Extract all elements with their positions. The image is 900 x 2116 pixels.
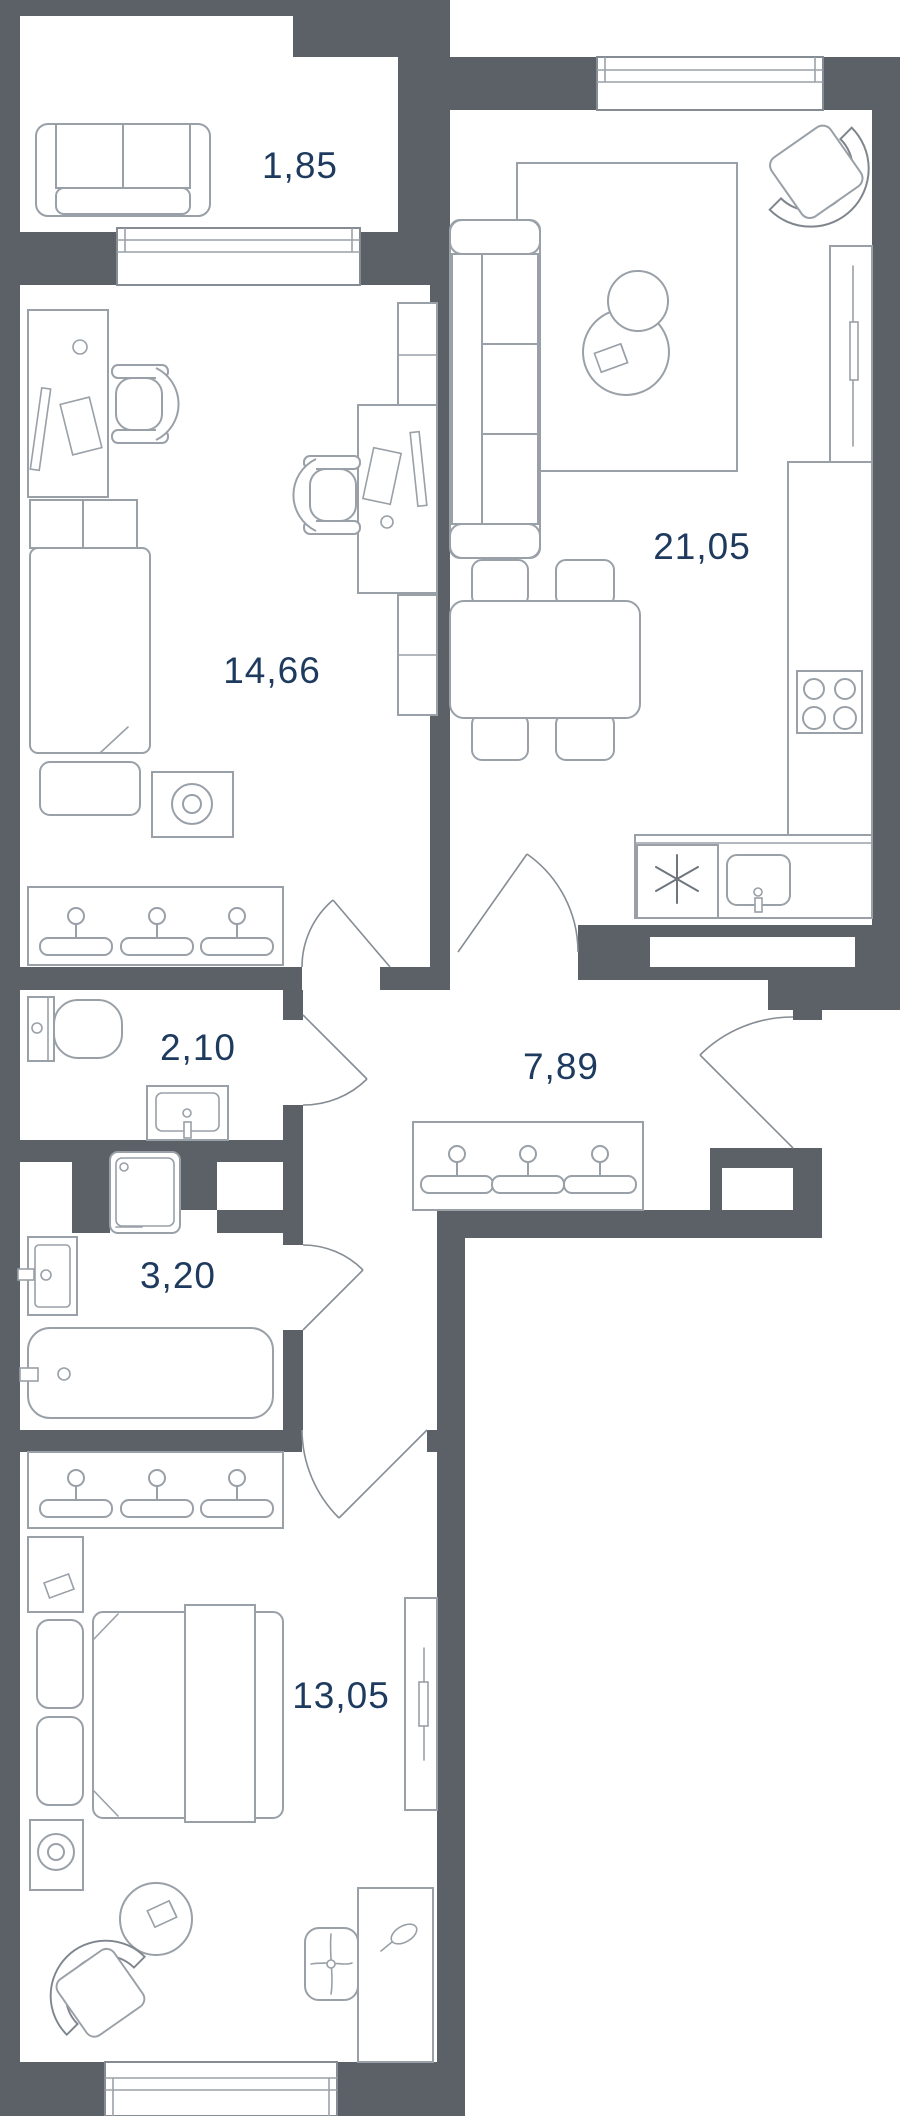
door-living	[458, 854, 578, 952]
wall-bedroom2-right	[437, 1210, 465, 2096]
coffee-tables-icon	[583, 271, 669, 395]
pouf-icon	[305, 1928, 358, 2000]
room-bedroom	[28, 1452, 437, 2062]
wall-washer-block-right	[180, 1162, 217, 1210]
dining-table-icon	[450, 601, 640, 718]
wall-entrance-top	[768, 980, 900, 1010]
wall-niche-left	[710, 1168, 722, 1210]
wall-bottom-right	[337, 2062, 465, 2116]
wall-washer-block-left	[72, 1162, 110, 1233]
wall-entrance-nub	[793, 1010, 822, 1020]
room-label-bedroom-office: 14,66	[223, 650, 321, 691]
window-balcony-french	[117, 228, 360, 285]
floor-plan-svg: 1,85 21,05 14,66 2,10 7,89 3,20 13,05	[0, 0, 900, 2116]
wall-living-top-left	[450, 57, 597, 110]
door-bedroom	[302, 1430, 427, 1518]
wall-bedroom-bottom	[0, 967, 302, 990]
window-bedroom-bottom	[105, 2062, 337, 2116]
wall-toilet-right-lower	[283, 1105, 303, 1245]
sofa-icon	[450, 220, 540, 558]
wall-hallway-bottom	[437, 1210, 822, 1238]
shelf-icon	[398, 303, 437, 407]
wall-bathroom-bottom	[0, 1430, 302, 1452]
room-label-bathroom: 3,20	[140, 1255, 216, 1296]
nightstand-lamp-icon	[30, 1820, 83, 1890]
desk2-icon	[358, 405, 437, 593]
window-living-top	[597, 57, 823, 110]
nightstand-lamp-icon	[152, 772, 233, 837]
wall-bathroom-right	[283, 1330, 303, 1430]
chair-icon	[556, 714, 614, 760]
dresser-icon	[405, 1598, 437, 1810]
wall-living-top-right	[823, 57, 900, 110]
door-entrance	[700, 1017, 793, 1148]
wall-bedroom-bottom-right	[380, 967, 450, 990]
wall-balcony-top	[0, 0, 297, 16]
wardrobe-icon	[28, 887, 283, 965]
wall-bedroom2-top-stub	[427, 1430, 437, 1452]
chair-icon	[556, 560, 614, 606]
wall-left	[0, 0, 20, 2116]
vanity-desk-icon	[358, 1888, 433, 2062]
cushion-icon	[37, 1620, 83, 1708]
round-rug-icon	[120, 1883, 192, 1955]
sofa-icon	[36, 124, 210, 216]
door-bathroom	[303, 1245, 363, 1330]
cushion-icon	[37, 1717, 83, 1805]
room-label-bedroom: 13,05	[292, 1675, 390, 1716]
wardrobe-icon	[413, 1122, 643, 1210]
chair-icon	[472, 560, 528, 606]
room-label-balcony: 1,85	[262, 145, 338, 186]
wall-niche-top	[710, 1148, 822, 1168]
dishwasher-icon	[637, 845, 718, 918]
shelf-icon	[398, 595, 437, 715]
shelf-icon	[28, 1537, 83, 1612]
washbasin-icon	[18, 1237, 77, 1315]
bench-icon	[40, 762, 140, 815]
wall-toilet-right-upper	[283, 990, 303, 1020]
room-bedroom-office	[28, 303, 437, 965]
door-toilet	[303, 1015, 367, 1105]
dining-set-icon	[450, 560, 640, 760]
toilet-icon	[28, 997, 122, 1061]
room-balcony	[36, 124, 210, 216]
armchair-icon	[28, 1918, 169, 2059]
room-label-toilet: 2,10	[160, 1027, 236, 1068]
room-label-hallway: 7,89	[523, 1046, 599, 1087]
office-chair-icon	[293, 456, 360, 534]
armchair-icon	[745, 103, 893, 251]
shaft-niche	[650, 937, 855, 967]
room-hallway	[413, 1122, 643, 1210]
room-living-kitchen	[450, 103, 893, 918]
floor-plan: 1,85 21,05 14,66 2,10 7,89 3,20 13,05	[0, 0, 900, 2116]
wall-bath-niche-bottom	[217, 1210, 283, 1233]
wall-french-right	[360, 232, 450, 285]
kitchen-sink-icon	[727, 855, 790, 912]
wall-bottom-left	[0, 2062, 105, 2116]
double-bed-icon	[93, 1605, 283, 1822]
bed-icon	[30, 500, 150, 753]
wall-french-left	[20, 232, 117, 285]
wardrobe-icon	[28, 1452, 283, 1528]
wall-right	[872, 110, 900, 1000]
room-toilet	[28, 997, 228, 1140]
kitchen-counter-icon	[788, 462, 872, 835]
office-chair-icon	[112, 365, 179, 443]
door-bedroom-office	[302, 900, 390, 967]
tv-console-icon	[830, 246, 872, 462]
washing-machine-icon	[110, 1152, 180, 1233]
stove-icon	[797, 671, 862, 733]
bathtub-icon	[20, 1328, 273, 1418]
desk-icon	[28, 310, 108, 497]
room-label-living-kitchen: 21,05	[653, 526, 751, 567]
chair-icon	[472, 714, 528, 760]
washbasin-icon	[147, 1086, 228, 1140]
